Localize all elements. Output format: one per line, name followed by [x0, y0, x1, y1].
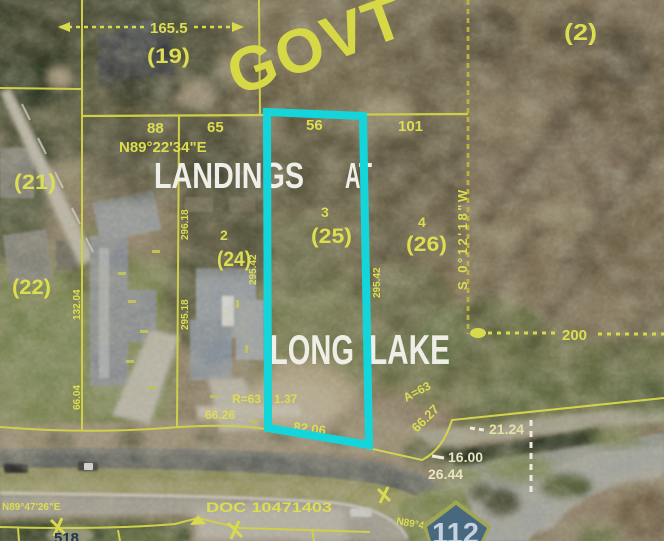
svg-text:112: 112 — [432, 518, 479, 541]
svg-text:21.24: 21.24 — [489, 421, 524, 437]
svg-text:R=63: R=63 — [232, 392, 261, 406]
svg-text:(21): (21) — [14, 171, 56, 194]
svg-text:56: 56 — [306, 117, 323, 134]
svg-text:200: 200 — [562, 327, 587, 344]
svg-text:101: 101 — [398, 118, 423, 135]
svg-text:1.37: 1.37 — [274, 392, 298, 406]
svg-text:296.18: 296.18 — [180, 209, 191, 240]
svg-text:(24): (24) — [217, 248, 251, 271]
svg-text:88: 88 — [147, 120, 164, 137]
svg-text:66.04: 66.04 — [72, 385, 83, 410]
svg-text:(26): (26) — [406, 233, 447, 256]
svg-text:LAKE: LAKE — [369, 326, 450, 373]
svg-text:26.44: 26.44 — [428, 466, 463, 482]
svg-text:295.42: 295.42 — [248, 254, 259, 285]
svg-text:(25): (25) — [311, 225, 352, 248]
svg-text:LONG: LONG — [270, 326, 354, 373]
svg-text:(22): (22) — [12, 276, 51, 299]
svg-text:DOC 10471403: DOC 10471403 — [206, 499, 332, 515]
svg-text:4: 4 — [418, 214, 426, 230]
svg-text:N89°22'34"E: N89°22'34"E — [119, 139, 207, 156]
svg-text:132.04: 132.04 — [72, 289, 83, 320]
svg-text:518: 518 — [54, 530, 79, 541]
svg-text:165.5: 165.5 — [150, 20, 188, 37]
svg-text:295.42: 295.42 — [372, 267, 383, 298]
svg-text:295.18: 295.18 — [180, 299, 191, 330]
svg-text:66.26: 66.26 — [205, 408, 235, 422]
svg-text:N89°47'26"E: N89°47'26"E — [2, 502, 61, 513]
svg-text:3: 3 — [321, 204, 329, 220]
svg-text:2: 2 — [220, 227, 228, 243]
svg-text:(19): (19) — [147, 45, 190, 68]
svg-text:65: 65 — [207, 119, 224, 136]
svg-text:(2): (2) — [564, 19, 597, 45]
svg-text:S 0°12'18"W: S 0°12'18"W — [455, 187, 470, 290]
svg-text:16.00: 16.00 — [448, 449, 483, 465]
svg-text:LANDINGS: LANDINGS — [154, 155, 304, 196]
